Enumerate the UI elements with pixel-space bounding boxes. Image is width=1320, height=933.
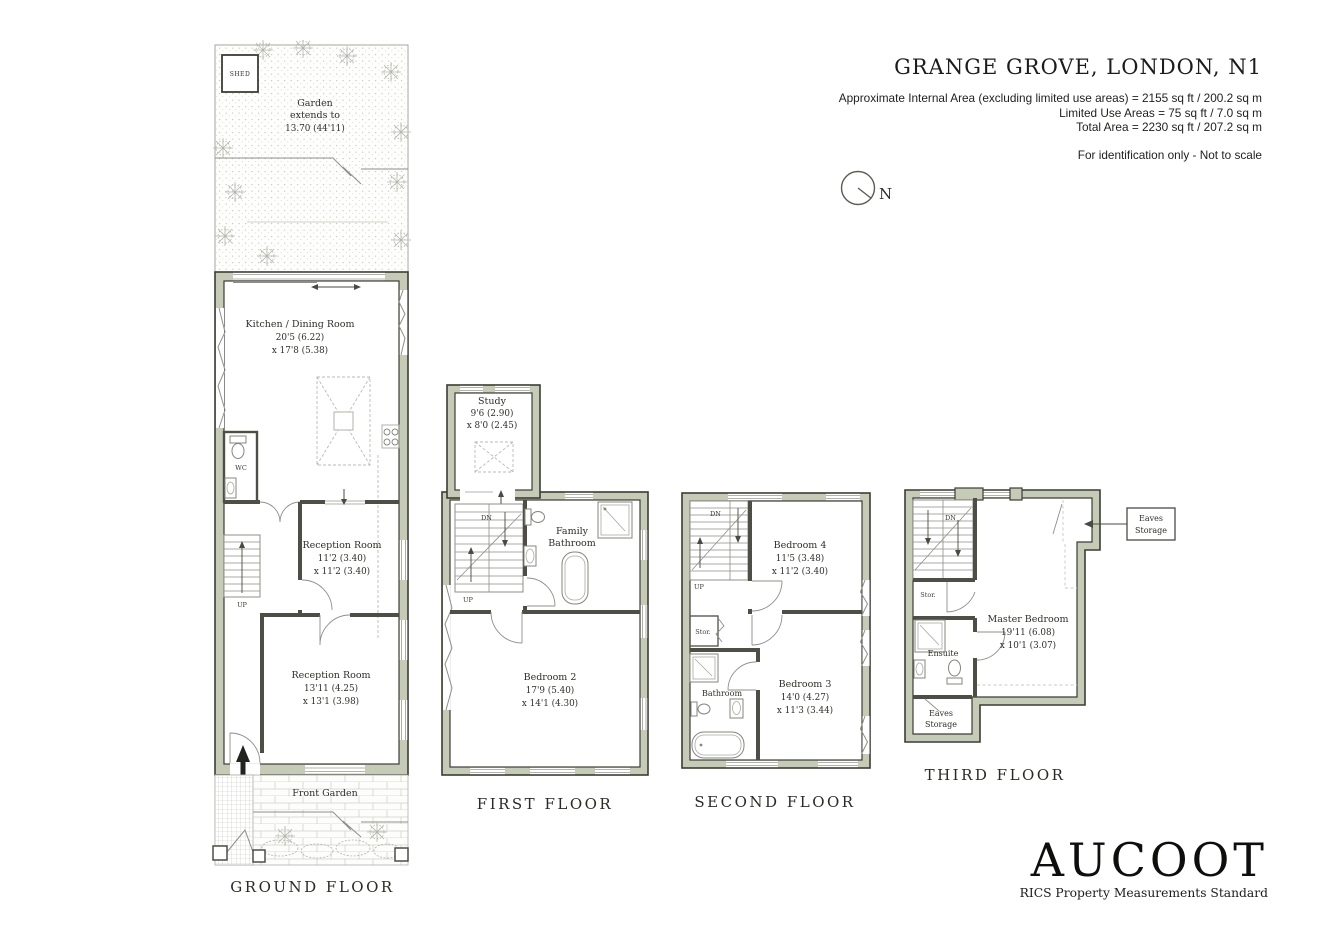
up-label: UP	[694, 583, 704, 591]
garden-label: Garden	[297, 98, 333, 109]
family-bathroom-label-2: Bathroom	[548, 538, 596, 549]
plant-icon	[337, 46, 357, 66]
bedroom4-dim1: 11'5 (3.48)	[776, 553, 824, 564]
eaves-room-label-2: Storage	[925, 720, 957, 729]
bedroom3-dim1: 14'0 (4.27)	[781, 692, 829, 703]
staircase-down: DN	[913, 500, 973, 580]
rear-garden: SHED Garden extends to 13.70 (44'11)	[213, 40, 411, 272]
disclaimer: For identification only - Not to scale	[839, 148, 1262, 162]
toilet-icon	[691, 702, 697, 716]
second-floor-plan: DN UP Stor.	[670, 480, 880, 810]
bedroom3-label: Bedroom 3	[779, 679, 832, 690]
staircase: DN UP	[690, 501, 748, 591]
plant-icon	[225, 182, 245, 202]
header: GRANGE GROVE, LONDON, N1 Approximate Int…	[839, 55, 1262, 162]
footer: AUCOOT RICS Property Measurements Standa…	[1020, 836, 1268, 900]
bedroom3-dim2: x 11'3 (3.44)	[777, 705, 833, 716]
toilet-icon	[230, 436, 246, 443]
storage-label: Stor.	[920, 591, 935, 599]
plant-icon	[275, 826, 295, 846]
kitchen-dim2: x 17'8 (5.38)	[272, 345, 328, 356]
eaves-room-label-1: Eaves	[929, 709, 953, 718]
staircase: DN UP	[455, 504, 523, 604]
floorplan-page: GRANGE GROVE, LONDON, N1 Approximate Int…	[0, 0, 1320, 933]
front-garden-label: Front Garden	[292, 788, 357, 799]
study-opening	[460, 486, 515, 504]
bedroom2-dim1: 17'9 (5.40)	[526, 685, 574, 696]
reception-windows	[400, 540, 408, 740]
dn-label: DN	[481, 514, 492, 522]
page-title: GRANGE GROVE, LONDON, N1	[839, 55, 1262, 79]
plant-icon	[215, 226, 235, 246]
shed-label: SHED	[230, 71, 251, 78]
bedroom4-dim2: x 11'2 (3.40)	[772, 566, 828, 577]
dn-label: DN	[710, 510, 721, 518]
ensuite-label: Ensuite	[928, 649, 959, 658]
second-floor-label: SECOND FLOOR	[670, 793, 880, 811]
master-bedroom-dim2: x 10'1 (3.07)	[1000, 640, 1056, 651]
plant-icon	[213, 138, 233, 158]
kitchen-dim1: 20'5 (6.22)	[276, 332, 324, 343]
island-sink	[334, 412, 353, 430]
reception2-label: Reception Room	[291, 670, 370, 681]
bathroom-label: Bathroom	[702, 689, 742, 698]
bedroom4-label: Bedroom 4	[774, 540, 827, 551]
up-label: UP	[463, 596, 473, 604]
toilet-icon	[525, 509, 531, 525]
bedroom2-label: Bedroom 2	[524, 672, 577, 683]
up-label: UP	[237, 601, 247, 609]
internal-area-line: Approximate Internal Area (excluding lim…	[839, 91, 1262, 106]
ground-floor-plan: SHED Garden extends to 13.70 (44'11)	[205, 40, 420, 910]
toilet-icon	[949, 660, 961, 676]
master-bedroom-dim1: 19'11 (6.08)	[1001, 627, 1055, 638]
dn-label: DN	[945, 514, 956, 522]
reception2-dim1: 13'11 (4.25)	[304, 683, 358, 694]
third-floor-plan: DN Stor. Ensuite Eaves Stor	[895, 480, 1185, 780]
front-garden: Front Garden	[213, 775, 408, 865]
compass-icon: N	[835, 163, 910, 218]
family-bathroom-label-1: Family	[556, 526, 589, 537]
kitchen-label: Kitchen / Dining Room	[245, 319, 354, 330]
garden-dimension: 13.70 (44'11)	[285, 123, 345, 134]
first-floor-plan: Study 9'6 (2.90) x 8'0 (2.45) DN UP	[435, 380, 655, 820]
study-dim2: x 8'0 (2.45)	[467, 420, 518, 431]
reception1-dim2: x 11'2 (3.40)	[314, 566, 370, 577]
compass-north-label: N	[879, 185, 892, 203]
storage-label: Stor.	[695, 628, 710, 636]
master-bedroom-label: Master Bedroom	[988, 614, 1069, 625]
plant-icon	[381, 62, 401, 82]
limited-use-line: Limited Use Areas = 75 sq ft / 7.0 sq m	[839, 106, 1262, 121]
first-floor-label: FIRST FLOOR	[435, 795, 655, 813]
brand-tagline: RICS Property Measurements Standard	[1020, 886, 1268, 900]
kitchen-bay-window	[216, 308, 224, 428]
plant-icon	[391, 122, 411, 142]
third-floor-label: THIRD FLOOR	[895, 766, 1095, 784]
garden-label-2: extends to	[290, 110, 340, 121]
brand-logo: AUCOOT	[1020, 836, 1268, 884]
study-label: Study	[478, 396, 507, 407]
bedroom2-dim2: x 14'1 (4.30)	[522, 698, 578, 709]
reception2-dim2: x 13'1 (3.98)	[303, 696, 359, 707]
total-area-line: Total Area = 2230 sq ft / 207.2 sq m	[839, 120, 1262, 135]
plant-icon	[387, 172, 407, 192]
eaves-callout-label-1: Eaves	[1139, 514, 1163, 523]
front-window	[305, 765, 365, 774]
plant-icon	[391, 230, 411, 250]
ground-floor-label: GROUND FLOOR	[205, 878, 420, 896]
eaves-callout-label-2: Storage	[1135, 526, 1167, 535]
plant-icon	[257, 246, 277, 266]
study-dim1: 9'6 (2.90)	[471, 408, 514, 419]
plant-icon	[367, 822, 387, 842]
wc-label: WC	[235, 464, 247, 472]
reception1-label: Reception Room	[302, 540, 381, 551]
reception1-dim1: 11'2 (3.40)	[318, 553, 366, 564]
